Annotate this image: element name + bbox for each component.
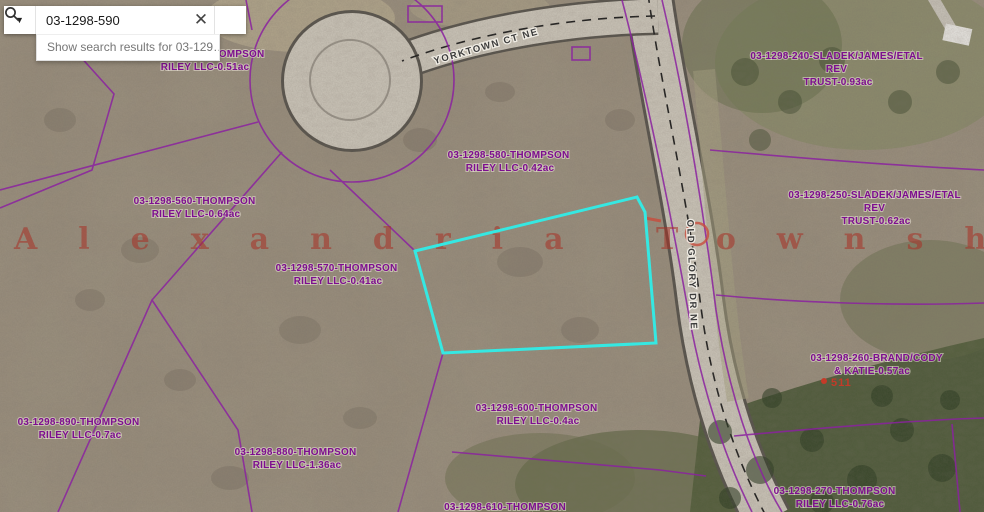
address-label: 511	[831, 377, 852, 389]
close-icon: ✕	[194, 10, 208, 30]
search-suggestion[interactable]: Show search results for 03-129…	[36, 34, 220, 61]
address-point	[821, 378, 827, 384]
parcel-map[interactable]: 511 Alexandria Townsh YORKTOWN CT NE OLD…	[0, 0, 984, 512]
map-viewport[interactable]: 511 Alexandria Townsh YORKTOWN CT NE OLD…	[0, 0, 984, 512]
search-icon	[4, 6, 20, 22]
parcel-label-610: 03-1298-610-THOMPSON	[444, 502, 566, 512]
search-input[interactable]	[36, 6, 214, 34]
search-input-box: ✕	[36, 6, 214, 34]
search-bar: ▼ ✕	[4, 6, 246, 34]
search-button[interactable]	[214, 6, 246, 34]
clear-search-button[interactable]: ✕	[190, 6, 212, 34]
search-widget: ▼ ✕ Show search results for 03-129…	[4, 6, 246, 61]
township-watermark: Alexandria Townsh	[13, 222, 984, 257]
